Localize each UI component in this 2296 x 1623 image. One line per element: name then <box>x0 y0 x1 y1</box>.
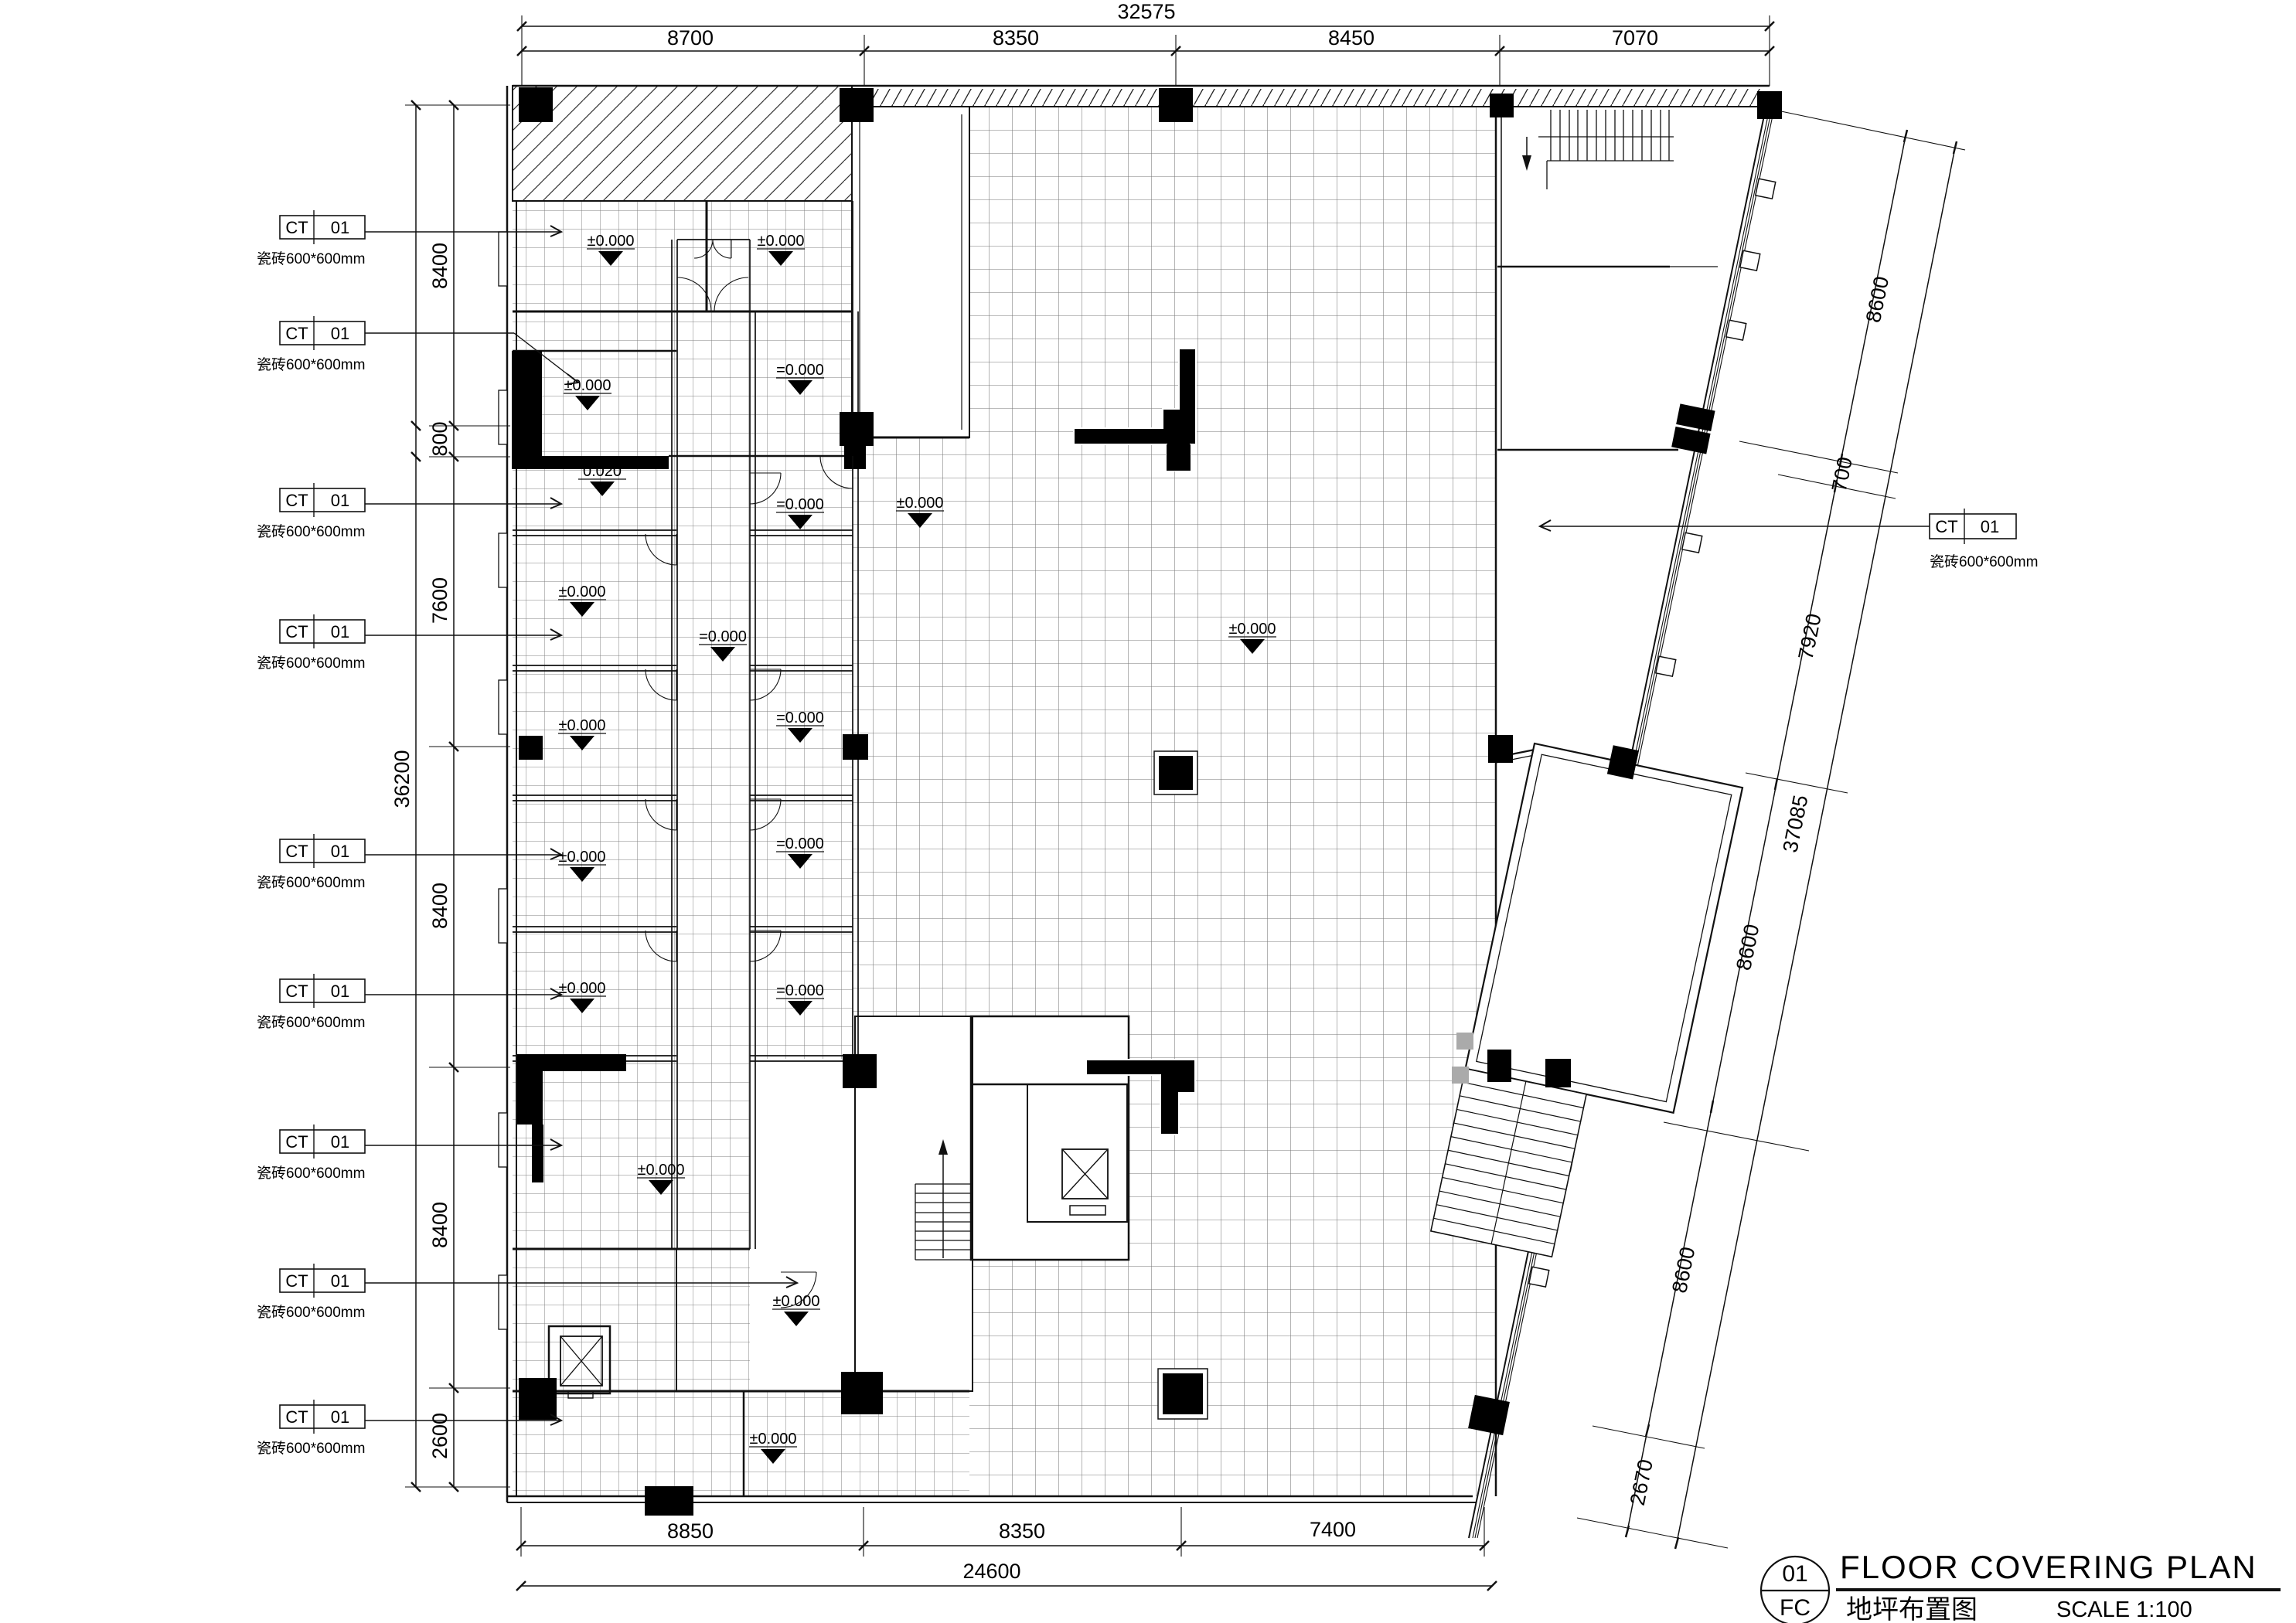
svg-text:瓷砖600*600mm: 瓷砖600*600mm <box>257 356 365 373</box>
svg-text:±0.000: ±0.000 <box>558 584 605 601</box>
svg-text:01: 01 <box>331 218 349 237</box>
svg-text:±0.000: ±0.000 <box>558 849 605 866</box>
svg-text:±0.000: ±0.000 <box>757 233 804 250</box>
svg-text:FC: FC <box>1780 1595 1811 1621</box>
svg-text:2600: 2600 <box>428 1413 451 1459</box>
svg-text:01: 01 <box>331 491 349 510</box>
svg-text:地坪布置图: 地坪布置图 <box>1846 1595 1977 1623</box>
svg-text:±0.000: ±0.000 <box>564 377 611 394</box>
svg-text:±0.000: ±0.000 <box>772 1293 819 1310</box>
svg-text:=0.000: =0.000 <box>699 628 747 645</box>
svg-text:8400: 8400 <box>428 1202 451 1248</box>
svg-text:8450: 8450 <box>1328 26 1375 49</box>
svg-text:=0.000: =0.000 <box>776 835 824 852</box>
svg-text:±0.000: ±0.000 <box>587 233 634 250</box>
svg-text:±0.000: ±0.000 <box>1228 621 1276 638</box>
svg-text:7070: 7070 <box>1612 26 1658 49</box>
svg-text:瓷砖600*600mm: 瓷砖600*600mm <box>257 655 365 672</box>
svg-text:7600: 7600 <box>428 577 451 624</box>
svg-text:8400: 8400 <box>428 243 451 289</box>
svg-text:CT: CT <box>285 218 308 237</box>
svg-text:=0.000: =0.000 <box>776 362 824 379</box>
svg-text:8850: 8850 <box>667 1519 714 1543</box>
svg-text:瓷砖600*600mm: 瓷砖600*600mm <box>257 1165 365 1182</box>
svg-text:01: 01 <box>331 1407 349 1427</box>
svg-text:CT: CT <box>285 1407 308 1427</box>
svg-text:01: 01 <box>331 622 349 641</box>
svg-text:=0.000: =0.000 <box>776 709 824 726</box>
svg-text:01: 01 <box>331 842 349 861</box>
svg-text:瓷砖600*600mm: 瓷砖600*600mm <box>257 523 365 540</box>
svg-text:01: 01 <box>1782 1561 1807 1587</box>
svg-text:8700: 8700 <box>667 26 714 49</box>
svg-text:CT: CT <box>285 1132 308 1152</box>
svg-text:FLOOR COVERING PLAN: FLOOR COVERING PLAN <box>1840 1549 2257 1585</box>
svg-text:=0.000: =0.000 <box>776 982 824 999</box>
svg-text:CT: CT <box>1935 517 1957 536</box>
svg-text:CT: CT <box>285 324 308 343</box>
svg-text:01: 01 <box>331 1132 349 1152</box>
svg-text:±0.000: ±0.000 <box>749 1431 796 1448</box>
svg-text:±0.000: ±0.000 <box>558 717 605 734</box>
svg-text:CT: CT <box>285 982 308 1001</box>
svg-text:瓷砖600*600mm: 瓷砖600*600mm <box>257 250 365 267</box>
svg-text:01: 01 <box>331 324 349 343</box>
svg-text:CT: CT <box>285 491 308 510</box>
svg-text:CT: CT <box>285 622 308 641</box>
svg-text:01: 01 <box>1981 517 1999 536</box>
svg-text:CT: CT <box>285 842 308 861</box>
svg-text:7400: 7400 <box>1310 1518 1356 1541</box>
svg-text:8400: 8400 <box>428 883 451 929</box>
svg-text:800: 800 <box>428 421 451 456</box>
svg-text:±0.000: ±0.000 <box>558 980 605 997</box>
svg-text:8350: 8350 <box>993 26 1039 49</box>
svg-text:8350: 8350 <box>999 1519 1045 1543</box>
svg-text:01: 01 <box>331 982 349 1001</box>
svg-text:瓷砖600*600mm: 瓷砖600*600mm <box>257 1304 365 1321</box>
svg-text:SCALE 1:100: SCALE 1:100 <box>2056 1597 2192 1622</box>
svg-text:瓷砖600*600mm: 瓷砖600*600mm <box>257 1440 365 1457</box>
svg-text:=0.000: =0.000 <box>776 496 824 513</box>
svg-text:32575: 32575 <box>1117 0 1175 23</box>
svg-text:±0.000: ±0.000 <box>637 1162 684 1179</box>
svg-text:±0.000: ±0.000 <box>896 495 943 512</box>
svg-text:36200: 36200 <box>390 750 414 808</box>
svg-text:0.020: 0.020 <box>583 463 622 480</box>
svg-text:CT: CT <box>285 1271 308 1291</box>
svg-text:24600: 24600 <box>962 1560 1020 1583</box>
svg-text:瓷砖600*600mm: 瓷砖600*600mm <box>1930 553 2038 570</box>
svg-text:01: 01 <box>331 1271 349 1291</box>
svg-text:瓷砖600*600mm: 瓷砖600*600mm <box>257 1014 365 1031</box>
svg-text:瓷砖600*600mm: 瓷砖600*600mm <box>257 874 365 891</box>
